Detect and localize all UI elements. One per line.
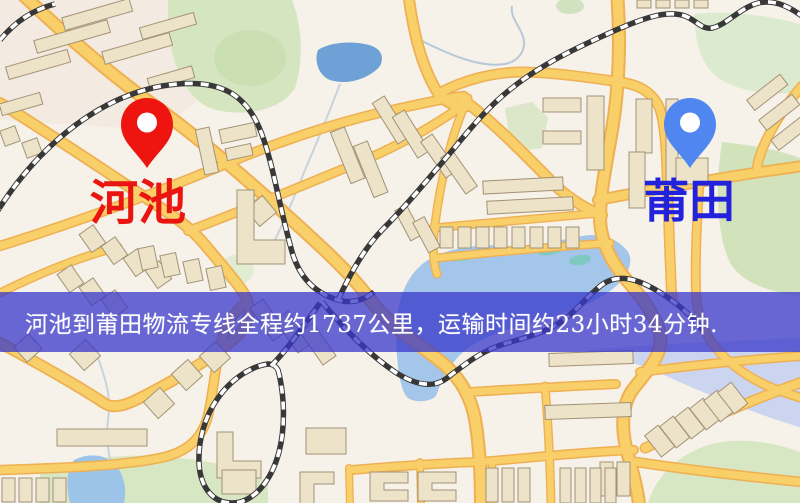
destination-pin-hole	[680, 113, 700, 133]
building	[545, 403, 631, 420]
building	[19, 478, 32, 502]
origin-city-label: 河池	[90, 175, 186, 231]
building	[549, 351, 633, 367]
building	[548, 227, 561, 248]
building	[494, 227, 507, 248]
building	[486, 468, 498, 502]
destination-city-label: 莆田	[643, 174, 735, 228]
building	[502, 468, 514, 502]
building	[512, 227, 525, 248]
park	[214, 30, 286, 86]
building	[458, 227, 471, 248]
building	[605, 468, 616, 503]
building	[440, 227, 453, 248]
building	[675, 0, 689, 8]
building	[575, 468, 586, 503]
building	[590, 468, 601, 503]
route-info-text: 河池到莆田物流专线全程约1737公里，运输时间约23小时34分钟.	[25, 305, 718, 339]
building	[53, 478, 66, 502]
map-canvas: 河池 莆田	[0, 0, 800, 503]
building	[2, 478, 15, 502]
building	[57, 429, 147, 446]
route-info-banner: 河池到莆田物流专线全程约1737公里，运输时间约23小时34分钟.	[0, 292, 800, 352]
building	[543, 98, 581, 112]
logistics-route-map: 河池 莆田 河池到莆田物流专线全程约1737公里，运输时间约23小时34分钟.	[0, 0, 800, 503]
building	[530, 227, 543, 248]
building	[617, 462, 630, 496]
building	[656, 0, 670, 8]
building	[566, 227, 579, 248]
building	[543, 131, 581, 144]
building	[306, 428, 346, 454]
building	[518, 468, 530, 502]
building	[694, 0, 708, 8]
building	[222, 470, 256, 494]
building	[587, 96, 604, 170]
building	[637, 0, 651, 8]
building	[560, 468, 571, 503]
building	[476, 227, 489, 248]
origin-pin-hole	[137, 113, 157, 133]
building	[36, 478, 49, 502]
building	[636, 99, 652, 153]
